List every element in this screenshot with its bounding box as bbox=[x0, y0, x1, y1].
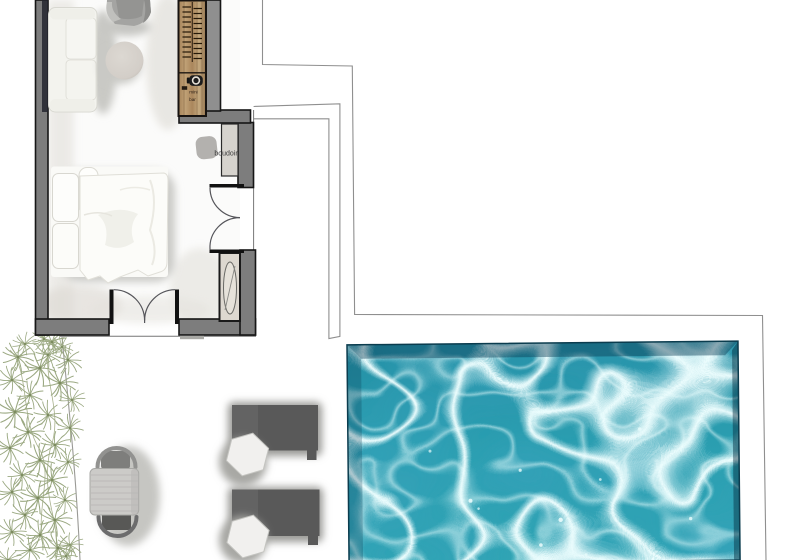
svg-text:boudoir: boudoir bbox=[214, 151, 238, 158]
svg-text:bar: bar bbox=[189, 97, 196, 102]
svg-text:mini: mini bbox=[189, 90, 197, 95]
